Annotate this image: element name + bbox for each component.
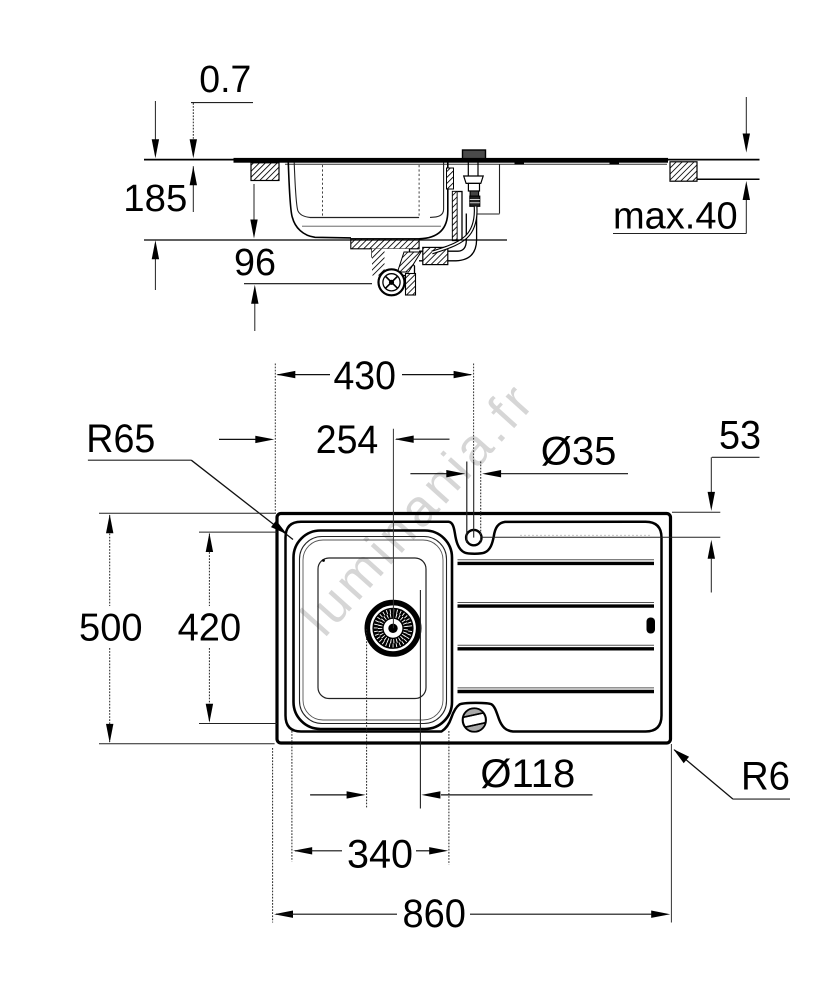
svg-text:Ø118: Ø118 — [480, 752, 575, 796]
svg-text:420: 420 — [178, 607, 242, 650]
svg-text:max.40: max.40 — [613, 195, 738, 237]
svg-text:430: 430 — [333, 354, 396, 398]
svg-text:340: 340 — [347, 832, 413, 876]
svg-text:R6: R6 — [741, 754, 790, 798]
svg-text:53: 53 — [719, 413, 761, 457]
svg-text:860: 860 — [402, 892, 466, 936]
svg-text:R65: R65 — [86, 417, 155, 461]
svg-text:96: 96 — [234, 242, 276, 284]
svg-text:0.7: 0.7 — [199, 59, 251, 101]
svg-text:185: 185 — [123, 178, 187, 220]
svg-text:Ø35: Ø35 — [541, 429, 617, 473]
svg-text:254: 254 — [316, 418, 379, 462]
svg-text:500: 500 — [79, 606, 143, 649]
